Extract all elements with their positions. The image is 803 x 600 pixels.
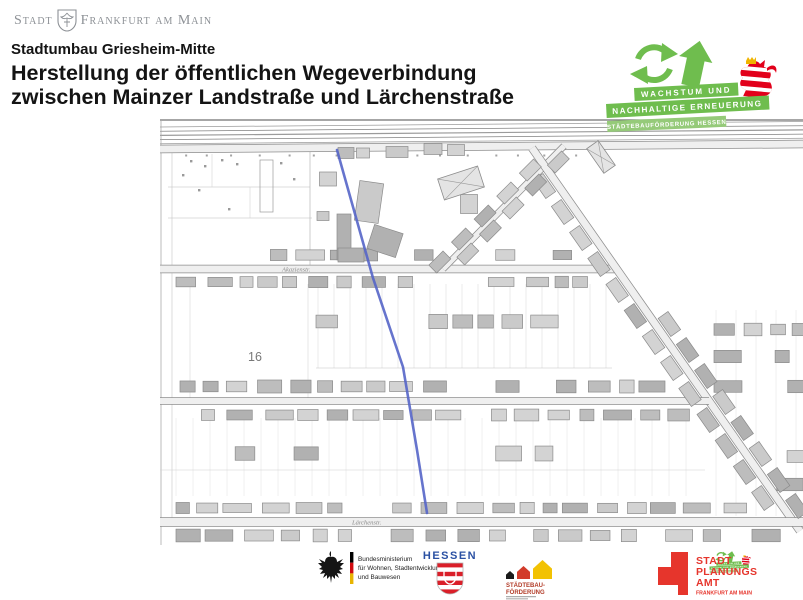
spa-line-3: AMT	[696, 577, 720, 589]
page-title: Herstellung der öffentlichen Wegeverbind…	[11, 61, 514, 110]
hessen-label: HESSEN	[423, 550, 477, 562]
staedtebaufoerderung-logo: STÄDTEBAU- FÖRDERUNG	[506, 560, 552, 599]
footer-logos: Bundesministerium für Wohnen, Stadtentwi…	[0, 545, 803, 600]
yellow-house-icon	[533, 560, 552, 579]
city-logo: Stadt Frankfurt am Main	[14, 9, 212, 32]
black-house-icon	[506, 571, 514, 579]
parcel-number: 16	[248, 350, 262, 364]
city-logo-prefix: Stadt	[14, 13, 53, 29]
map: Akazienstr. Lärchenstr. 16	[160, 118, 803, 545]
fine-print-line	[506, 596, 536, 597]
red-house-icon	[517, 566, 530, 579]
subtitle: Stadtumbau Griesheim-Mitte	[11, 41, 514, 58]
staedtebau-line-2: FÖRDERUNG	[506, 589, 545, 596]
map-svg: Akazienstr. Lärchenstr. 16	[160, 118, 803, 545]
wachstum-logo: WACHSTUM UND NACHHALTIGE ERNEUERUNG STÄD…	[604, 36, 800, 136]
street-label-laerchenstrasse: Lärchenstr.	[351, 520, 382, 527]
federal-eagle-icon	[318, 551, 344, 583]
fine-print-line	[506, 598, 528, 599]
hessen-logo: HESSEN	[423, 550, 477, 594]
bund-line-1: Bundesministerium	[358, 556, 412, 563]
staedtebau-line-1: STÄDTEBAU-	[506, 582, 545, 589]
stadtplanungsamt-icon	[658, 552, 688, 595]
title-line-2: zwischen Mainzer Landstraße und Lärchens…	[11, 85, 514, 109]
bund-line-2: für Wohnen, Stadtentwicklung	[358, 565, 443, 572]
header: Stadtumbau Griesheim-Mitte Herstellung d…	[11, 41, 514, 110]
frankfurt-eagle-icon	[57, 9, 77, 32]
hessen-shield-icon	[437, 563, 463, 594]
poster-page: { "city_logo": { "prefix": "Stadt", "nam…	[0, 0, 803, 600]
bund-line-3: und Bauwesen	[358, 574, 401, 581]
city-logo-name: Frankfurt am Main	[81, 13, 212, 29]
spa-subline: FRANKFURT AM MAIN	[696, 591, 752, 597]
street-label-akazienstrasse: Akazienstr.	[281, 266, 311, 273]
title-line-1: Herstellung der öffentlichen Wegeverbind…	[11, 61, 514, 85]
german-flag-stripe	[350, 552, 353, 584]
